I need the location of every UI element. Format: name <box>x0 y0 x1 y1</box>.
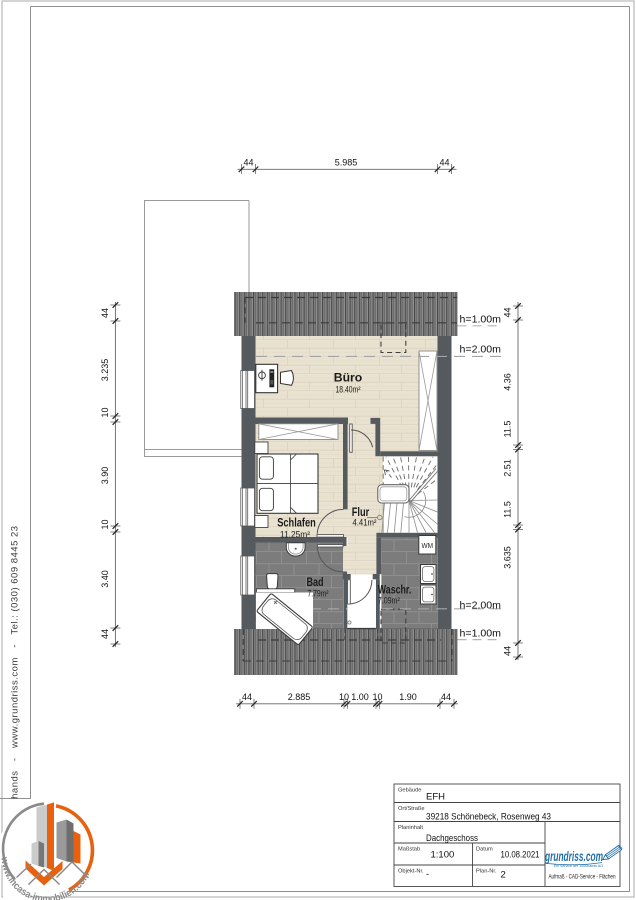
svg-text:18.40m²: 18.40m² <box>336 385 361 395</box>
svg-text:h=1.00m: h=1.00m <box>460 628 502 640</box>
svg-text:Datum: Datum <box>476 847 493 853</box>
svg-text:3.235: 3.235 <box>100 359 110 382</box>
svg-text:Büro: Büro <box>334 371 363 385</box>
svg-text:3.635: 3.635 <box>503 546 513 569</box>
svg-text:10: 10 <box>339 692 349 702</box>
svg-text:Maßstab: Maßstab <box>398 847 420 853</box>
svg-text:11.25m²: 11.25m² <box>280 530 310 540</box>
svg-text:1:100: 1:100 <box>431 850 455 861</box>
svg-text:10: 10 <box>100 407 110 417</box>
svg-text:3.40: 3.40 <box>100 570 110 588</box>
svg-text:44: 44 <box>242 692 252 702</box>
svg-text:2.51: 2.51 <box>503 459 513 477</box>
svg-text:EFH: EFH <box>426 792 445 803</box>
svg-text:4.41m²: 4.41m² <box>353 518 377 528</box>
svg-text:2.885: 2.885 <box>288 692 311 702</box>
svg-text:Aufmaß - CAD-Service - Flächen: Aufmaß - CAD-Service - Flächen <box>549 874 616 881</box>
svg-text:44: 44 <box>243 158 253 168</box>
svg-text:1.00: 1.00 <box>351 692 369 702</box>
svg-text:3.90: 3.90 <box>100 467 110 485</box>
svg-text:Plan-Nr.: Plan-Nr. <box>476 869 497 875</box>
svg-text:44: 44 <box>503 307 513 317</box>
svg-text:grundriss.com: grundriss.com <box>544 849 603 864</box>
svg-text:5.985: 5.985 <box>335 158 358 168</box>
svg-text:10.08.2021: 10.08.2021 <box>501 850 540 861</box>
svg-text:h=2.00m: h=2.00m <box>460 343 502 355</box>
svg-text:Planinhalt: Planinhalt <box>398 825 423 831</box>
svg-text:44: 44 <box>503 646 513 656</box>
svg-text:h=1.00m: h=1.00m <box>460 314 502 326</box>
svg-text:Dachgeschoss: Dachgeschoss <box>426 833 478 844</box>
svg-text:Schlafen: Schlafen <box>277 516 316 530</box>
svg-text:11.5: 11.5 <box>503 501 513 518</box>
svg-text:Gebäude: Gebäude <box>398 788 421 794</box>
svg-text:4.36: 4.36 <box>503 373 513 391</box>
svg-text:WM: WM <box>422 541 434 550</box>
svg-text:-: - <box>426 869 429 880</box>
svg-text:44: 44 <box>439 158 449 168</box>
svg-text:11.5: 11.5 <box>503 421 513 438</box>
svg-text:2: 2 <box>501 870 506 881</box>
svg-text:Ein Service der 1000hands AG: Ein Service der 1000hands AG <box>554 864 603 868</box>
svg-text:44: 44 <box>441 692 451 702</box>
svg-text:1.90: 1.90 <box>399 692 417 702</box>
svg-text:h=2.00m: h=2.00m <box>460 599 502 611</box>
svg-text:Bad: Bad <box>307 575 324 589</box>
svg-text:44: 44 <box>100 629 110 639</box>
svg-text:Ort/Straße: Ort/Straße <box>398 806 425 812</box>
svg-text:Waschr.: Waschr. <box>378 583 412 597</box>
svg-text:7.09m²: 7.09m² <box>378 596 400 606</box>
svg-text:7.79m²: 7.79m² <box>308 589 329 599</box>
svg-text:10: 10 <box>372 692 382 702</box>
svg-text:10: 10 <box>100 519 110 529</box>
svg-text:Objekt-Nr.: Objekt-Nr. <box>398 869 424 875</box>
svg-text:39218 Schönebeck, Rosenweg 43: 39218 Schönebeck, Rosenweg 43 <box>426 812 551 823</box>
svg-text:44: 44 <box>100 308 110 318</box>
svg-text:1000hands - www.grundriss.: 1000hands - www.grundriss.com - Tel.: (0… <box>10 525 21 822</box>
